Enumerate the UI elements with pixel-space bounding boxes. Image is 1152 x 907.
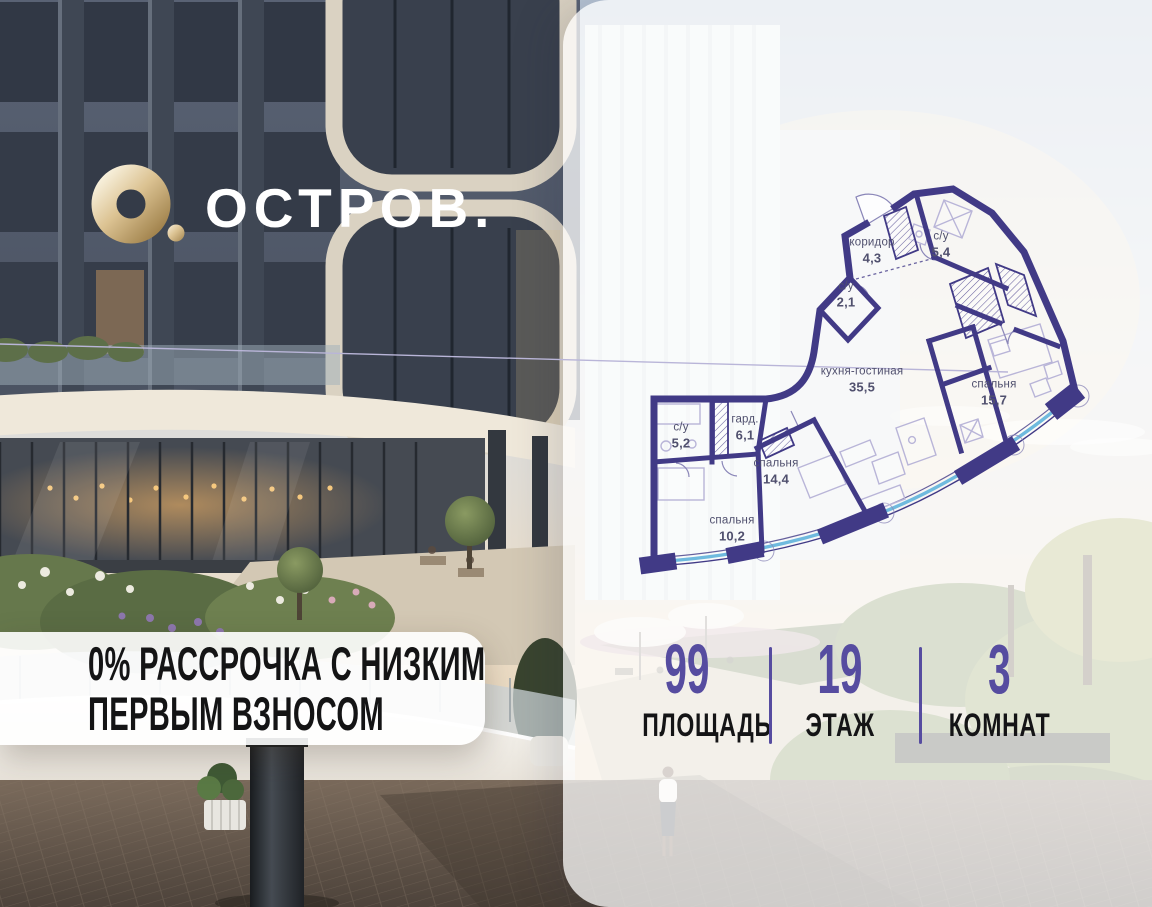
room-label-su-54: с/у 5,4 — [932, 231, 951, 262]
promo-card: коридор 4,3 с/у 5,4 с/у 2,1 кухня-гостин… — [0, 0, 1152, 907]
stat-rooms: 3 КОМНАТ — [929, 642, 1069, 741]
offer-banner: 0% РАССРОЧКА С НИЗКИМ ПЕРВЫМ ВЗНОСОМ — [0, 632, 485, 745]
room-name: гард. — [731, 414, 758, 426]
room-label-su-52: с/у 5,2 — [672, 422, 691, 453]
stat-floor-label: ЭТАЖ — [805, 710, 874, 740]
room-area: 15,7 — [981, 393, 1007, 408]
stat-rooms-value: 3 — [988, 642, 1011, 696]
stat-floor-value: 19 — [817, 642, 862, 696]
room-name: спальня — [753, 458, 798, 470]
stat-floor: 19 ЭТАЖ — [770, 642, 910, 741]
room-name: спальня — [971, 379, 1016, 391]
room-area: 5,2 — [672, 436, 691, 451]
room-label-bedroom-144: спальня 14,4 — [753, 458, 798, 489]
stat-area: 99 ПЛОЩАДЬ — [617, 642, 757, 741]
room-name: с/у — [673, 422, 688, 434]
room-name: коридор — [849, 237, 894, 249]
stat-divider-2 — [919, 647, 922, 744]
room-label-kitchen-living: кухня-гостиная 35,5 — [821, 366, 904, 397]
brand-logo: ОСТРОВ. — [87, 160, 507, 255]
brand-wordmark: ОСТРОВ. — [205, 181, 495, 236]
room-name: кухня-гостиная — [821, 366, 904, 378]
room-area: 6,1 — [736, 428, 755, 443]
room-area: 4,3 — [863, 251, 882, 266]
floor-plan-panel — [563, 0, 1152, 907]
room-name: с/у — [838, 281, 853, 293]
room-area: 14,4 — [763, 472, 789, 487]
room-label-wardrobe: гард. 6,1 — [731, 414, 758, 445]
room-label-bedroom-157: спальня 15,7 — [971, 379, 1016, 410]
room-area: 2,1 — [837, 295, 856, 310]
room-area: 5,4 — [932, 245, 951, 260]
offer-line-2: ПЕРВЫМ ВЗНОСОМ — [88, 689, 486, 739]
room-label-bedroom-102: спальня 10,2 — [709, 515, 754, 546]
offer-line-1: 0% РАССРОЧКА С НИЗКИМ — [88, 639, 486, 689]
room-area: 35,5 — [849, 380, 875, 395]
room-label-su-21: с/у 2,1 — [837, 281, 856, 312]
room-name: с/у — [933, 231, 948, 243]
stat-rooms-label: КОМНАТ — [949, 710, 1051, 740]
stat-area-label: ПЛОЩАДЬ — [642, 710, 772, 740]
room-label-koridor: коридор 4,3 — [849, 237, 894, 268]
room-name: спальня — [709, 515, 754, 527]
room-area: 10,2 — [719, 529, 745, 544]
stat-area-value: 99 — [664, 642, 709, 696]
